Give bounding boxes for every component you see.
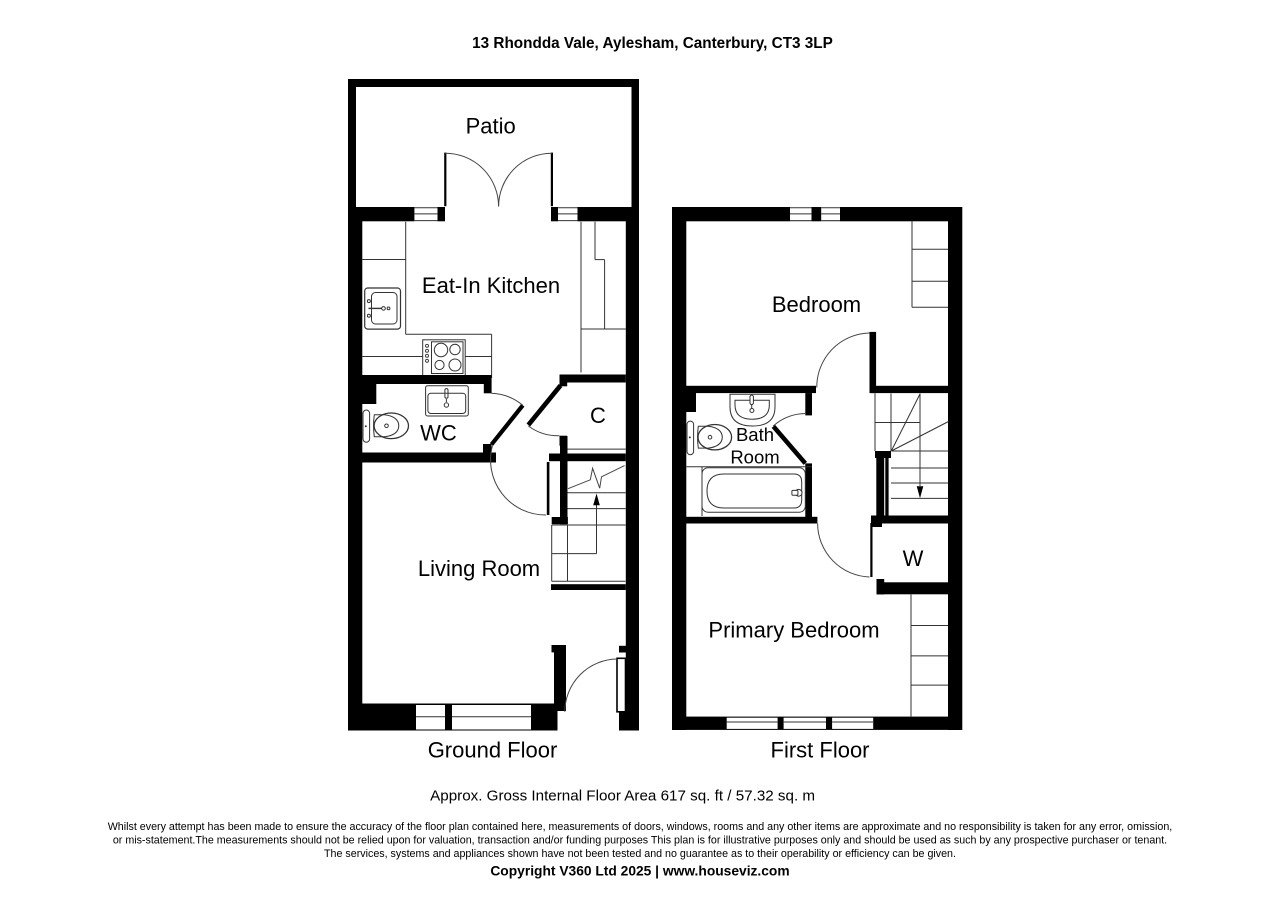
svg-text:W: W <box>903 546 924 571</box>
svg-text:Bedroom: Bedroom <box>772 292 861 317</box>
svg-text:The services, systems and appl: The services, systems and appliances sho… <box>324 848 956 860</box>
svg-text:Approx. Gross Internal Floor A: Approx. Gross Internal Floor Area 617 sq… <box>430 787 815 804</box>
svg-text:Eat-In Kitchen: Eat-In Kitchen <box>422 273 560 298</box>
svg-text:13 Rhondda Vale, Aylesham, Can: 13 Rhondda Vale, Aylesham, Canterbury, C… <box>472 35 833 52</box>
svg-text:C: C <box>590 403 606 428</box>
svg-text:Patio: Patio <box>466 113 516 138</box>
svg-text:or mis-statement.The measureme: or mis-statement.The measurements should… <box>113 835 1167 847</box>
svg-text:WC: WC <box>420 421 457 446</box>
svg-text:Primary Bedroom: Primary Bedroom <box>708 618 879 643</box>
svg-text:Bath: Bath <box>736 424 774 445</box>
svg-text:Whilst every attempt has been: Whilst every attempt has been made to en… <box>108 821 1173 833</box>
svg-text:Copyright V360 Ltd 2025 | www.: Copyright V360 Ltd 2025 | www.houseviz.c… <box>490 864 789 879</box>
svg-text:Room: Room <box>730 447 779 468</box>
svg-text:Ground Floor: Ground Floor <box>428 738 558 763</box>
svg-text:Living Room: Living Room <box>418 556 540 581</box>
svg-text:First Floor: First Floor <box>771 738 870 763</box>
